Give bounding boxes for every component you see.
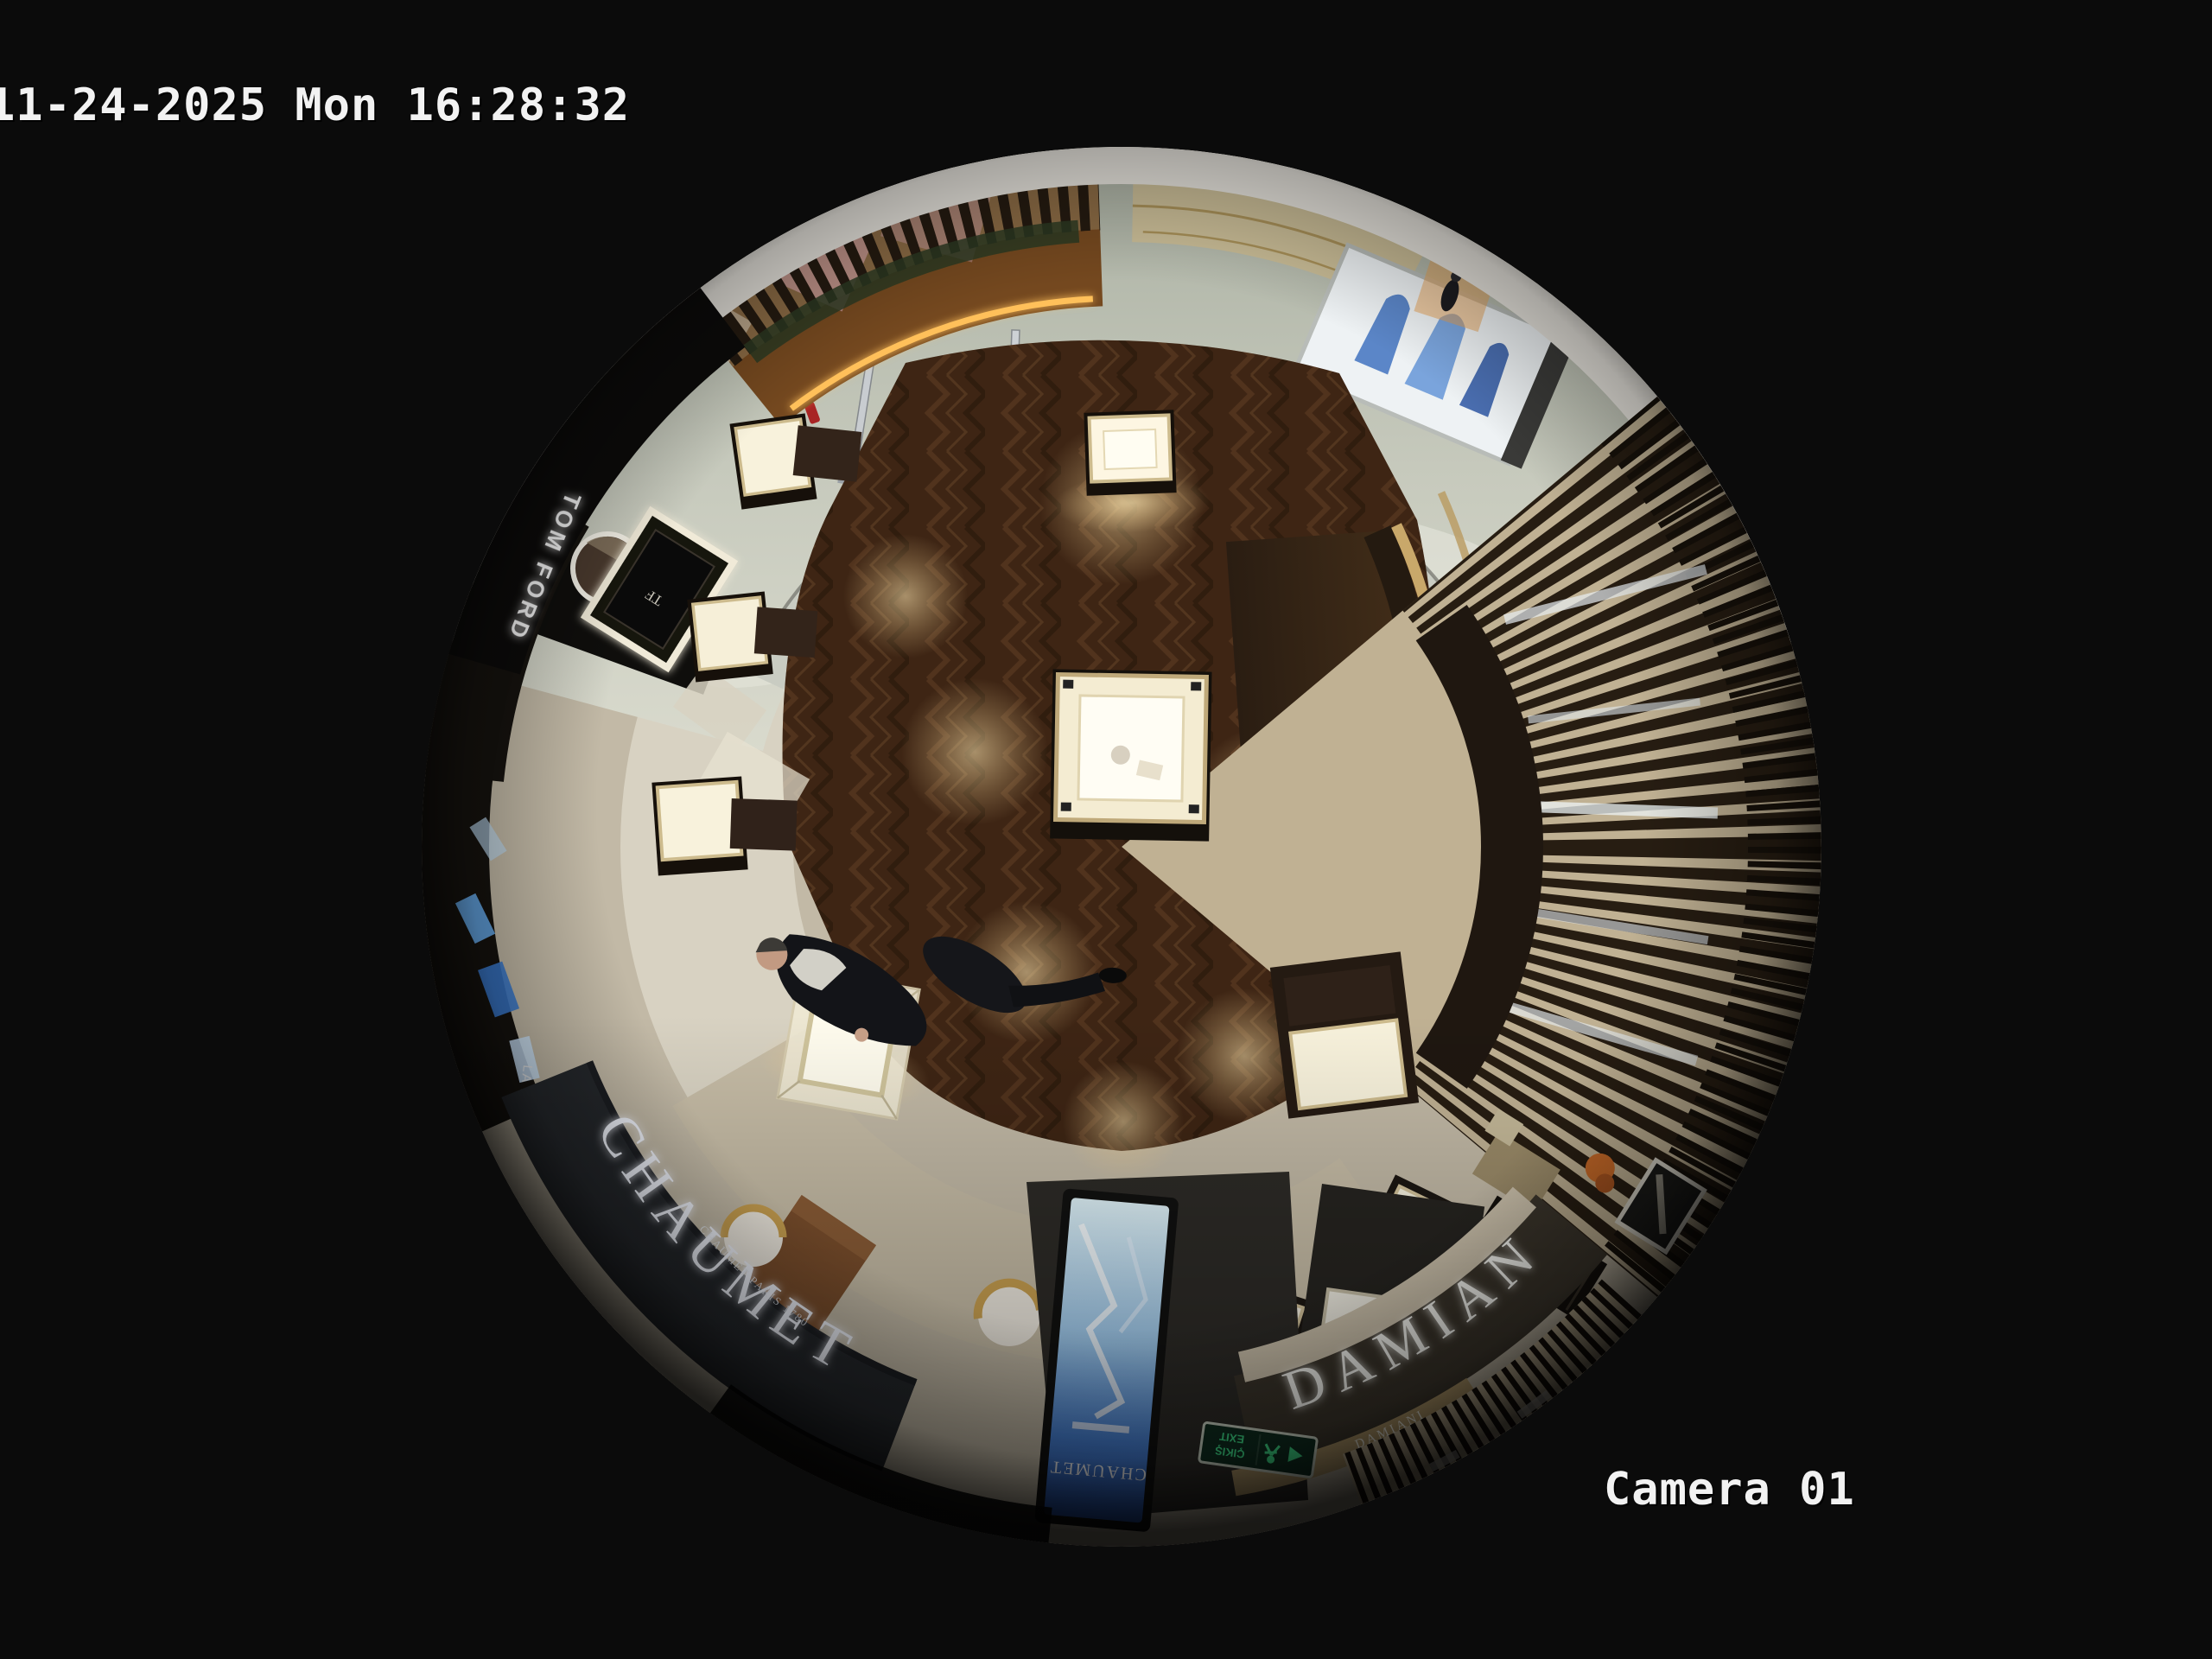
- fisheye-view: LA MER TOM FORD TF: [422, 147, 1821, 1547]
- osd-camera-label: Camera 01: [1604, 1464, 1855, 1516]
- rim-effects: [422, 147, 1821, 1547]
- osd-timestamp: 11-24-2025 Mon 16:28:32: [0, 79, 630, 131]
- cctv-frame: 11-24-2025 Mon 16:28:32 Camera 01: [0, 0, 2212, 1659]
